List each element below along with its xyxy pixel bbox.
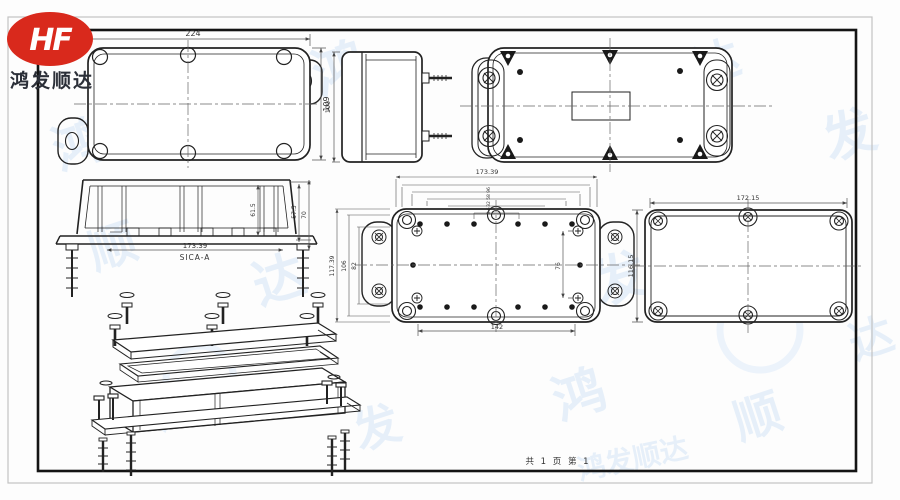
drawing-page: 鸿 发 鸿 顺 达 发 顺 达 鸿 发 顺 达 发 鸿 顺 达 鸿发顺达	[0, 0, 900, 500]
dim-section-mid-h: 57.5	[291, 205, 298, 219]
dim-holes-left-mid: 106	[341, 260, 348, 272]
engineering-drawing-canvas: 鸿 发 鸿 顺 达 发 顺 达 鸿 发 顺 达 发 鸿 顺 达 鸿发顺达	[0, 0, 900, 500]
exploded-anchors	[98, 430, 350, 476]
dim-holes-stack-1: 58	[486, 194, 492, 200]
dim-holes-right-inner: 76	[555, 262, 562, 270]
wm-char: 达	[843, 308, 900, 370]
dim-holes-bottom: 142	[491, 323, 503, 331]
wm-char: 发	[815, 99, 883, 172]
dim-holes-stack-3: 8.6	[486, 207, 492, 214]
dim-top-width: 224	[185, 29, 200, 38]
dim-lid-height: 116.15	[627, 255, 635, 278]
side-view: 109	[324, 52, 452, 162]
wm-char: 鸿	[545, 359, 613, 432]
page-info: 共 1 页 第 1	[525, 456, 590, 467]
dim-section-width: 173.39	[183, 242, 208, 250]
top-view: 224 109	[58, 29, 331, 168]
dim-section-total-h: 70	[301, 211, 308, 219]
wm-char: 顺	[726, 383, 789, 451]
dim-holes-left-inner: 82	[351, 262, 358, 270]
dim-side-height: 109	[324, 101, 332, 113]
dim-holes-stack-2: 32	[486, 201, 492, 207]
dim-holes-left-outer: 117.39	[329, 255, 336, 276]
holes-view: 173.39 96 58 32 8.6 117.39 106 82 142 76	[329, 168, 640, 336]
side-screws	[422, 73, 452, 141]
wm-char: 顺	[81, 213, 144, 281]
section-label: SICA-A	[180, 253, 211, 262]
wm-text: 鸿发顺达	[575, 431, 691, 487]
dim-section-inner-h: 61.5	[250, 203, 257, 217]
company-logo: HF 鸿发顺达	[7, 12, 94, 92]
bottom-view	[460, 38, 772, 172]
company-name: 鸿发顺达	[10, 69, 94, 92]
dim-holes-stack-0: 96	[486, 187, 492, 193]
lid-view: 172.15 116.15	[627, 194, 862, 333]
dim-lid-width: 172.15	[737, 194, 760, 202]
dim-holes-top: 173.39	[476, 168, 499, 176]
exploded-view	[92, 293, 360, 477]
logo-monogram: HF	[29, 23, 73, 58]
